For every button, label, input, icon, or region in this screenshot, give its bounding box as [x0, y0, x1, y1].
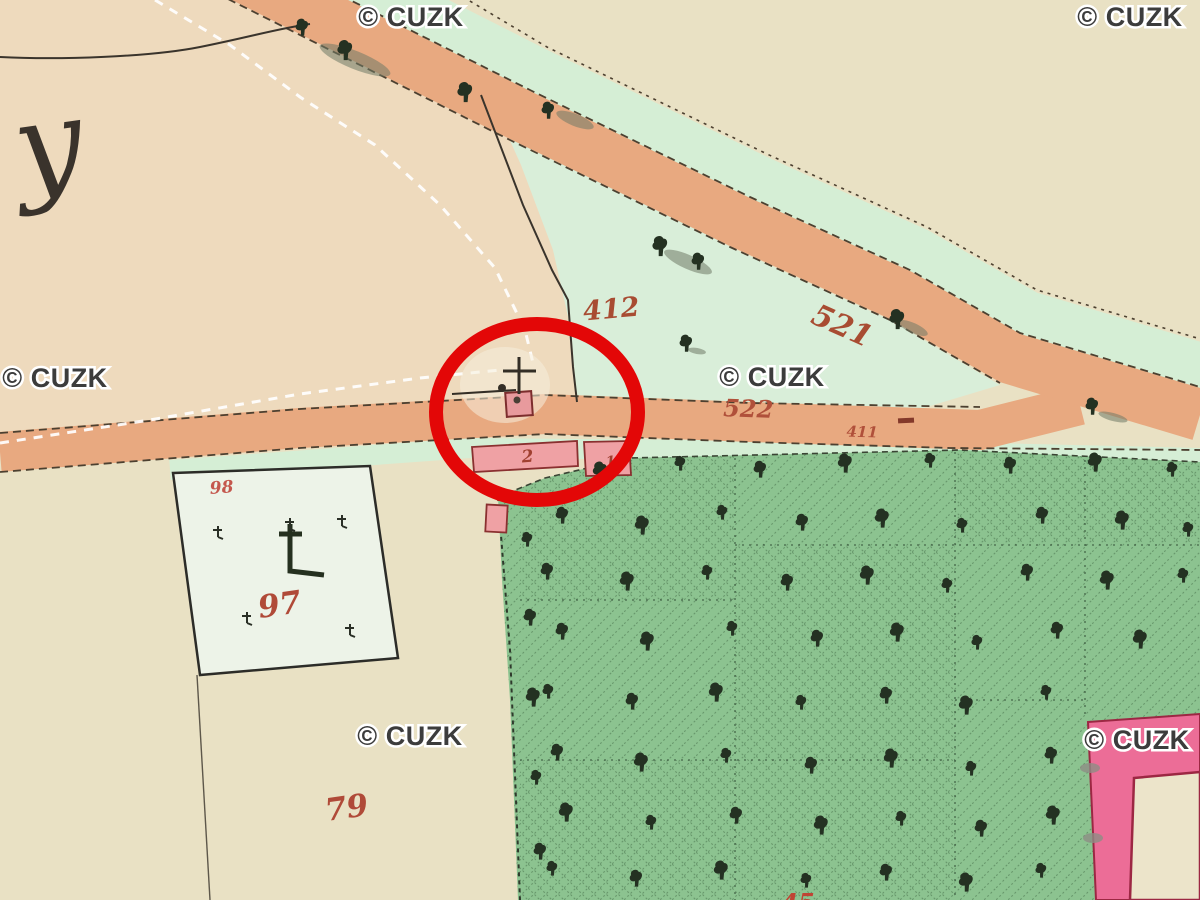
cuzk-watermark: © CUZK	[357, 721, 462, 751]
culvert-mark	[898, 418, 914, 424]
parcel-number: 79	[323, 787, 371, 829]
cuzk-watermark: © CUZK	[719, 362, 824, 392]
parcel-number: 45	[781, 888, 814, 900]
map-viewport[interactable]: y 4125215224119897792145 © CUZK© CUZK© C…	[0, 0, 1200, 900]
cuzk-watermark: © CUZK	[2, 363, 107, 393]
cuzk-watermark: © CUZK	[1084, 725, 1189, 755]
map-canvas[interactable]: y 4125215224119897792145 © CUZK© CUZK© C…	[0, 0, 1200, 900]
parcel-number: 97	[256, 584, 304, 626]
cuzk-watermark: © CUZK	[1077, 2, 1182, 32]
parcel-number: 522	[723, 393, 774, 424]
cuzk-watermark: © CUZK	[358, 2, 463, 32]
parcel-number: 412	[582, 292, 641, 328]
parcel-number: 98	[209, 477, 234, 499]
chapel-building	[505, 391, 533, 417]
worn-paper-patch	[460, 347, 550, 423]
parcel-number: 411	[846, 422, 878, 441]
parcel-number: 2	[520, 447, 535, 468]
garden-parcel	[173, 466, 398, 675]
